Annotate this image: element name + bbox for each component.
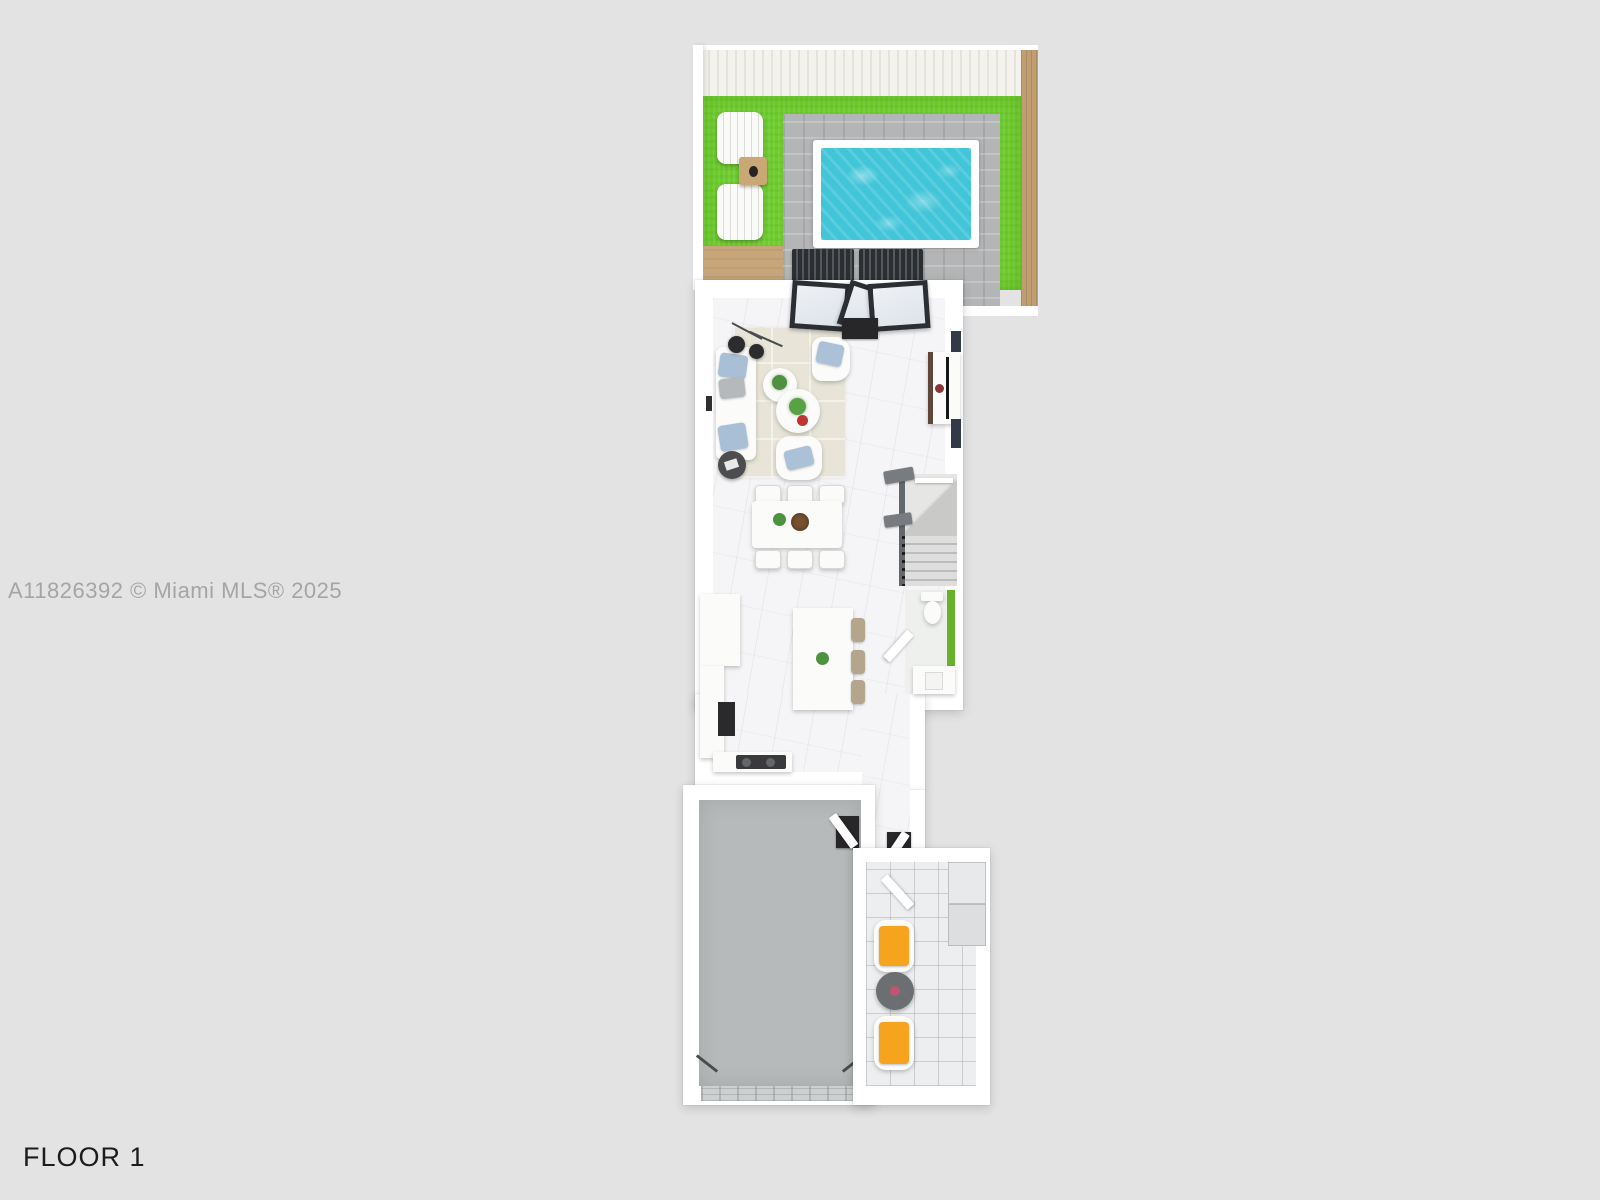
adirondack-chair [717, 184, 763, 240]
wood-deck [701, 50, 1038, 96]
window-icon [951, 331, 961, 352]
plant-icon [816, 652, 829, 665]
window-icon [706, 396, 712, 411]
dining-chair [819, 550, 845, 569]
sofa-pillow [717, 422, 749, 452]
patio-chair [859, 249, 923, 283]
privacy-fence [1021, 50, 1038, 314]
plant-icon [772, 375, 787, 390]
plant-icon [935, 384, 944, 393]
dining-chair [787, 550, 813, 569]
bar-stool [851, 618, 865, 642]
accent-chair-cushion [879, 926, 909, 966]
flower-icon [890, 986, 900, 996]
toilet-icon [924, 601, 941, 624]
dining-chair [755, 550, 781, 569]
tv-icon [946, 357, 949, 419]
staircase [905, 536, 957, 586]
garage-door [701, 1086, 859, 1101]
kettle-icon [749, 166, 758, 177]
bowl-icon [791, 513, 809, 531]
arc-lamp-shade [728, 336, 745, 353]
mls-watermark: A11826392 © Miami MLS® 2025 [8, 578, 342, 604]
yard-bottom-wall [963, 306, 1038, 316]
kitchen-cabinet [700, 594, 740, 666]
swimming-pool [821, 148, 971, 240]
flowers-icon [797, 415, 808, 426]
window-icon [951, 419, 961, 448]
bar-stool [851, 680, 865, 704]
entry-step [948, 904, 986, 946]
stair-landing [905, 474, 957, 536]
yard-left-wall [693, 45, 703, 290]
plant-icon [789, 398, 806, 415]
floor-label: FLOOR 1 [23, 1142, 146, 1173]
floorplan-canvas: A11826392 © Miami MLS® 2025 FLOOR 1 [0, 0, 1600, 1200]
door-mat [842, 318, 878, 339]
bar-stool [851, 650, 865, 674]
refrigerator-icon [718, 702, 735, 736]
toilet-tank [921, 592, 943, 601]
stair-balusters [902, 536, 905, 586]
arc-lamp-shade [749, 344, 764, 359]
sofa-pillow [717, 352, 748, 380]
accent-chair-cushion [879, 1022, 909, 1064]
burner-icon [766, 758, 775, 767]
burner-icon [742, 758, 751, 767]
tv-console-edge [928, 352, 933, 424]
plant-icon [773, 513, 786, 526]
sofa-pillow [718, 376, 746, 399]
patio-chair [792, 249, 854, 283]
stair-handrail [915, 478, 953, 483]
sink-icon [925, 672, 943, 690]
entry-step [948, 862, 986, 904]
